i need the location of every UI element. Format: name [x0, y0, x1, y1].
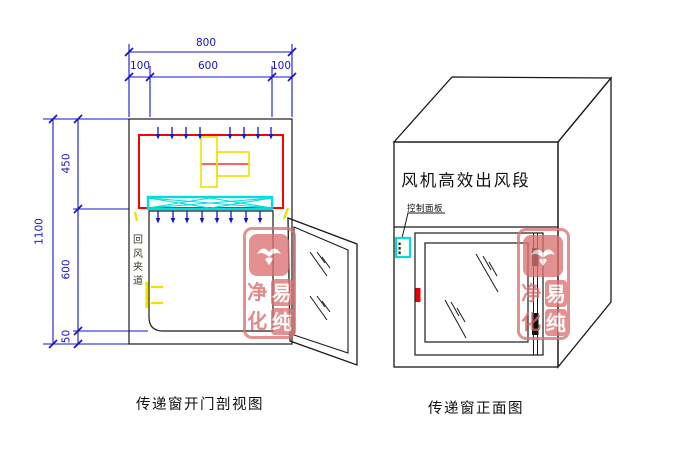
- dim-overall-height: 1100: [34, 207, 47, 257]
- left-view-open-door: [288, 218, 357, 365]
- drawing-canvas: 800 100 600 100 1100 450 600 50 回风夹道 风机高…: [0, 0, 680, 462]
- window-handle: [416, 288, 421, 302]
- left-view-fan-unit: [201, 137, 249, 187]
- stamp-char: 净: [519, 279, 544, 308]
- dim-width-right: 100: [261, 60, 301, 72]
- stamp-char: 化: [245, 307, 270, 336]
- dim-fan-section-height: 450: [61, 139, 74, 189]
- control-panel-label: 控制面板: [407, 202, 443, 214]
- dim-chamber-height: 600: [61, 245, 74, 295]
- drawing-svg: [0, 0, 680, 462]
- stamp-char: 易: [271, 279, 294, 306]
- airflow-arrows-filter: [156, 211, 263, 224]
- control-panel-buttons: [399, 243, 401, 255]
- window-glass-marks: [445, 254, 498, 338]
- stamp-logo-icon: [249, 234, 289, 276]
- stamp-char: 化: [519, 308, 544, 337]
- dim-overall-width: 800: [176, 37, 236, 49]
- return-air-label: 回风夹道: [132, 234, 144, 288]
- dim-width-center: 600: [178, 60, 238, 72]
- fan-section-label: 风机高效出风段: [386, 167, 546, 191]
- control-panel: [396, 213, 445, 257]
- stamp-char: 纯: [545, 309, 568, 336]
- watermark-stamp-left: 净 易 化 纯: [243, 227, 296, 339]
- right-view-box-outline: [394, 77, 611, 367]
- stamp-char: 纯: [271, 308, 294, 335]
- stamp-char: 易: [545, 280, 568, 307]
- right-view-caption: 传递窗正面图: [416, 397, 536, 418]
- watermark-stamp-right: 净 易 化 纯: [517, 228, 570, 340]
- dim-base-height: 50: [61, 312, 74, 362]
- stamp-logo-icon: [523, 235, 563, 277]
- door-glass-marks: [310, 252, 330, 320]
- dim-width-left: 100: [120, 60, 160, 72]
- left-view-caption: 传递窗开门剖视图: [130, 393, 270, 414]
- stamp-char: 净: [245, 278, 270, 307]
